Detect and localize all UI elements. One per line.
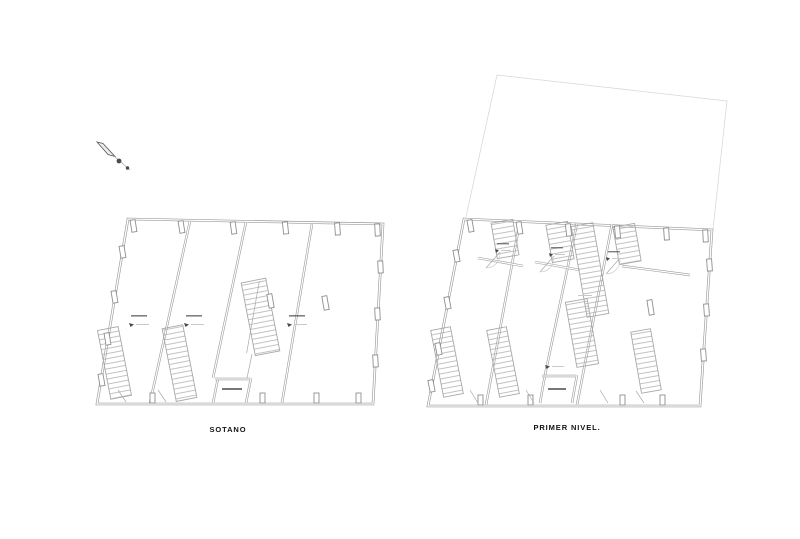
plan-sotano: SOTANO <box>97 219 383 434</box>
room-label-mark <box>222 388 242 390</box>
sotano-room-label-marker-2 <box>184 315 204 327</box>
primer-stair-run-3 <box>631 329 661 394</box>
sotano-room-label-marker-1 <box>129 315 149 327</box>
plan-title-primer-nivel: PRIMER NIVEL. <box>533 423 600 432</box>
sotano-small-room <box>213 378 251 403</box>
sotano-central-stair-run <box>241 278 280 378</box>
sotano-stair-run-2 <box>162 325 197 402</box>
primer-small-room <box>540 375 577 403</box>
room-label-mark <box>548 388 566 390</box>
floor-plan-drawing: SOTANO <box>0 0 800 539</box>
drawing-sheet: SOTANO <box>0 0 800 539</box>
primer-door-ticks <box>470 390 644 403</box>
primer-top-stair-1 <box>491 219 519 258</box>
plan-title-sotano: SOTANO <box>210 425 247 434</box>
north-arrow-icon <box>97 142 130 170</box>
plan-primer-nivel: PRIMER NIVEL. <box>428 75 727 432</box>
lot-boundary-line <box>466 75 727 229</box>
primer-stair-run-2 <box>487 327 520 398</box>
